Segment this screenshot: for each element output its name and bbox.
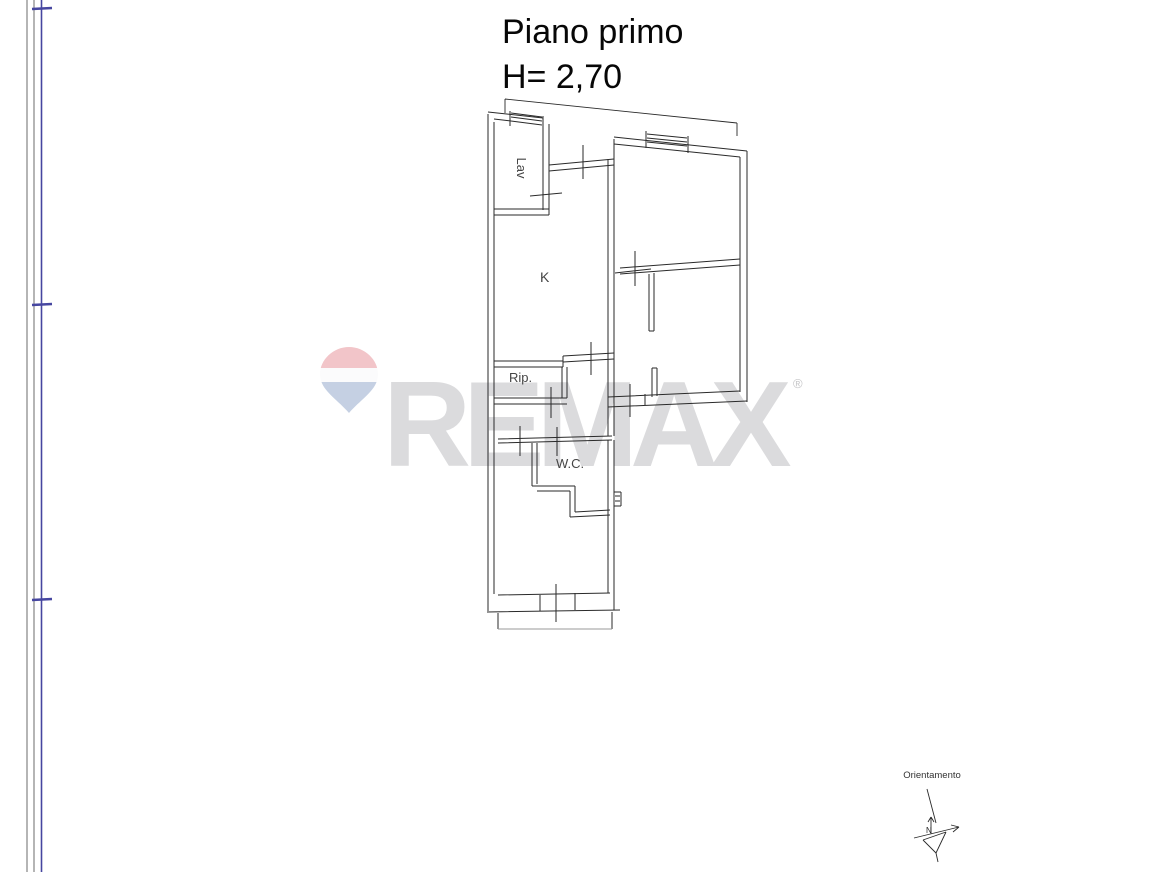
registered-trademark-icon: ® <box>793 376 803 391</box>
bottom-window <box>540 584 575 622</box>
floorplan-drawing: REMAX ® <box>0 0 1163 872</box>
lav-door-tick <box>530 193 562 196</box>
partition-wall <box>620 259 740 274</box>
plan-height-note: H= 2,70 <box>502 58 622 96</box>
plan-title: Piano primo <box>502 13 683 51</box>
label-wc: W.C. <box>556 456 584 471</box>
floorplan-sheet: REMAX ® <box>0 0 1163 872</box>
label-kitchen: K <box>540 269 550 285</box>
lav-window <box>510 111 543 131</box>
label-lav: Lav <box>514 158 529 179</box>
wc-vent-window <box>614 492 621 506</box>
orientation-label: Orientamento <box>903 770 961 781</box>
sheet-guide-lines <box>27 0 52 872</box>
stub-wall-upper <box>649 273 654 331</box>
watermark-brand-text: REMAX <box>383 356 791 492</box>
balcony-sides <box>498 612 612 629</box>
remax-balloon-icon <box>318 345 380 415</box>
north-letter: N <box>926 826 932 835</box>
label-rip: Rip. <box>509 370 532 385</box>
partition-door-ticks <box>615 251 651 286</box>
north-arrow-icon <box>914 789 959 862</box>
